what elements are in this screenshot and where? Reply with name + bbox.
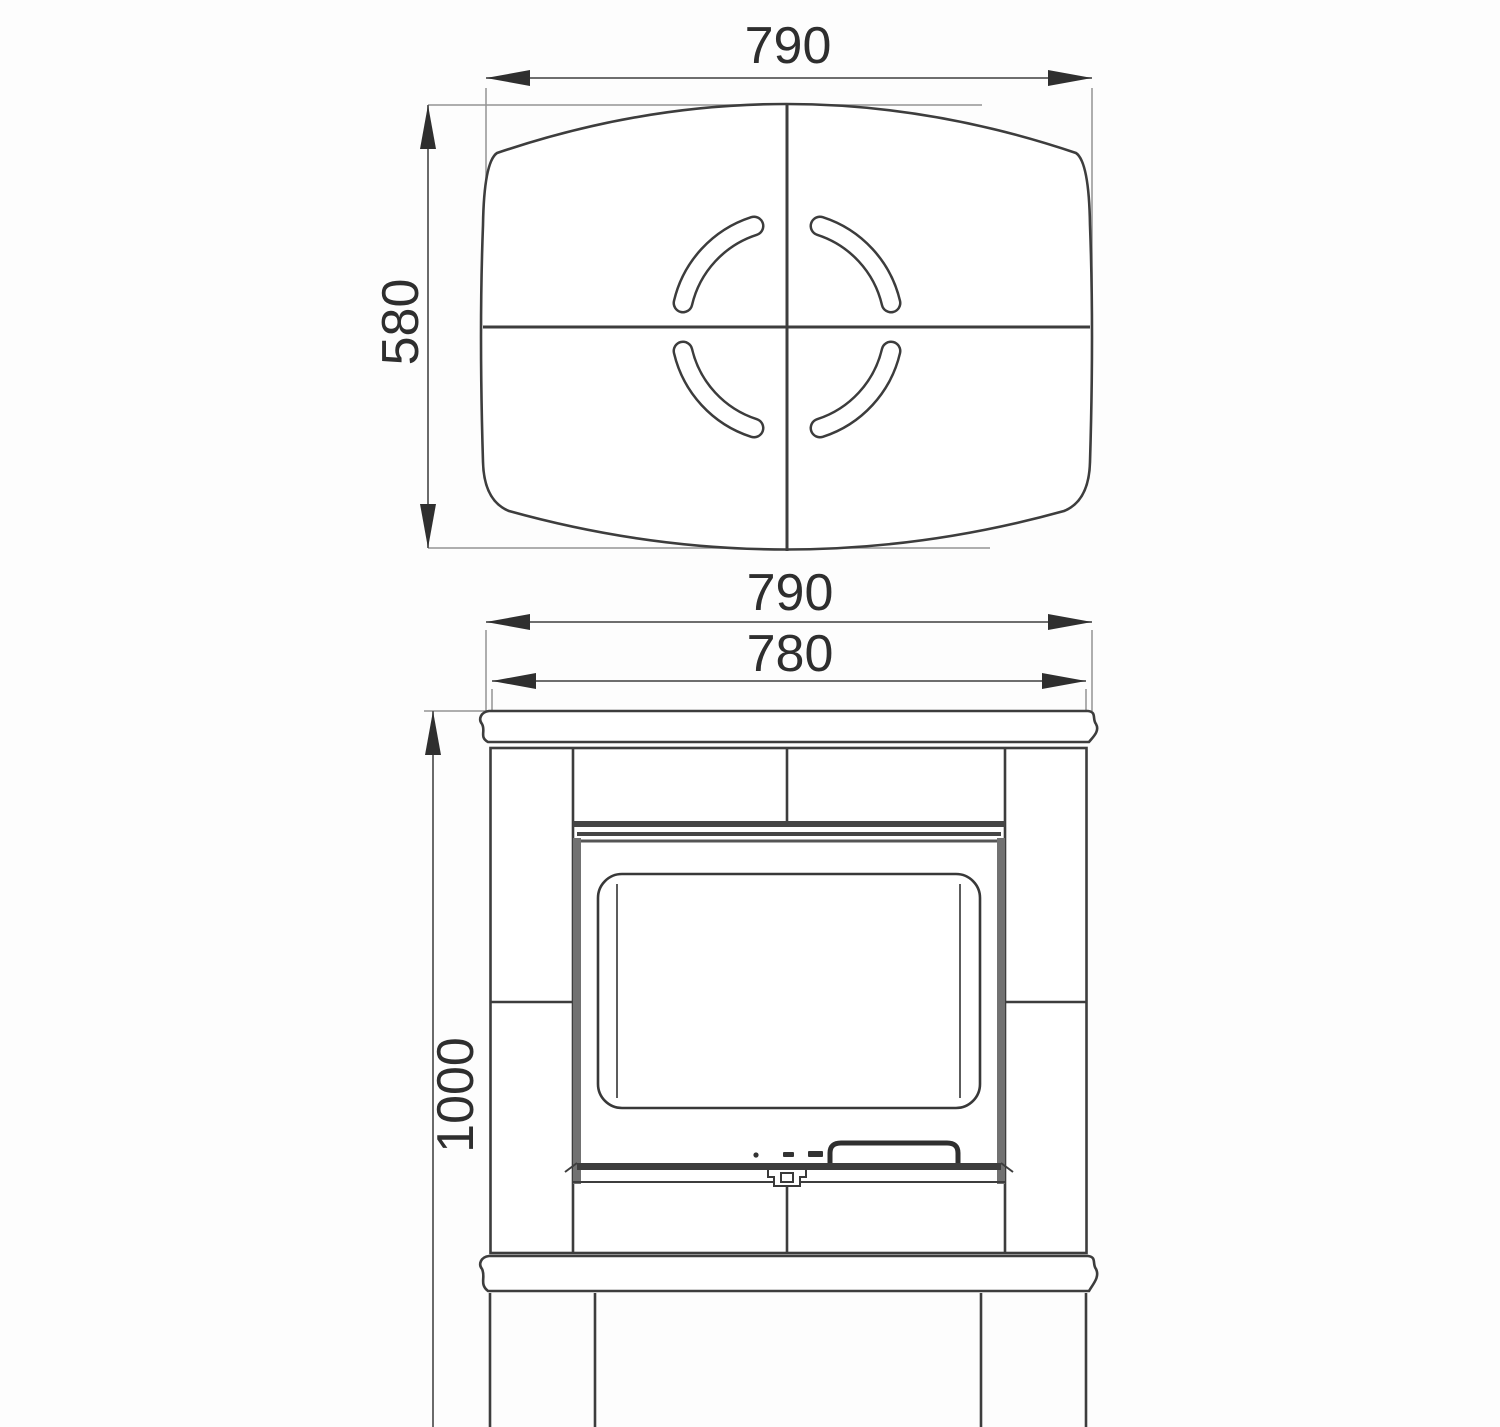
front-view-top-width-dimension: 790 [486,564,1092,630]
front-view-body-width-dimension: 780 [492,625,1086,689]
pedestal [490,1293,1086,1427]
top-slab [480,711,1097,742]
front-view: 790 780 1000 [424,564,1097,1427]
arrow-right-icon [1048,70,1092,86]
arrow-up-icon [420,105,436,149]
door-latch [768,1170,806,1186]
arrow-left-icon [486,70,530,86]
front-view-top-width-label: 790 [747,564,834,622]
arrow-down-icon [420,504,436,548]
door-frame-left [573,838,581,1184]
top-view-width-dimension: 790 [486,17,1092,86]
top-view: 790 580 [372,17,1092,551]
top-view-height-label: 580 [372,279,430,366]
control-dash-large [808,1151,823,1157]
arrow-left-icon [492,673,536,689]
arrow-up-icon [425,711,441,755]
control-dot [753,1152,758,1157]
arrow-left-icon [486,614,530,630]
arrow-right-icon [1042,673,1086,689]
door-glass [598,874,980,1108]
arrow-right-icon [1048,614,1092,630]
front-view-body-width-label: 780 [747,625,834,683]
control-dash-small [783,1152,794,1157]
stove-dimension-drawing: 790 580 [0,0,1500,1427]
front-view-height-dimension: 1000 [425,711,485,1427]
top-view-width-label: 790 [745,17,832,75]
technical-drawing-page: 790 580 [0,0,1500,1427]
door-frame-right [997,838,1005,1184]
base-slab [480,1256,1097,1291]
front-view-height-label: 1000 [427,1037,485,1153]
top-view-height-dimension: 580 [372,105,436,548]
